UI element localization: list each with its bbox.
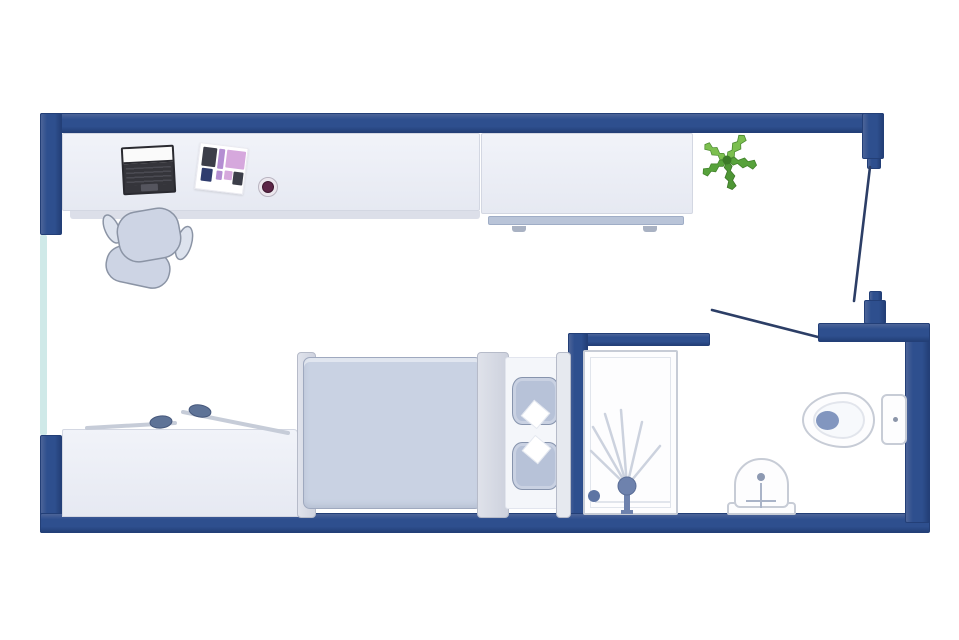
- entry-door-leaf: [854, 167, 870, 301]
- floor-plan: [0, 0, 959, 640]
- bathroom-door-leaf: [712, 310, 818, 337]
- door-swings: [0, 0, 959, 640]
